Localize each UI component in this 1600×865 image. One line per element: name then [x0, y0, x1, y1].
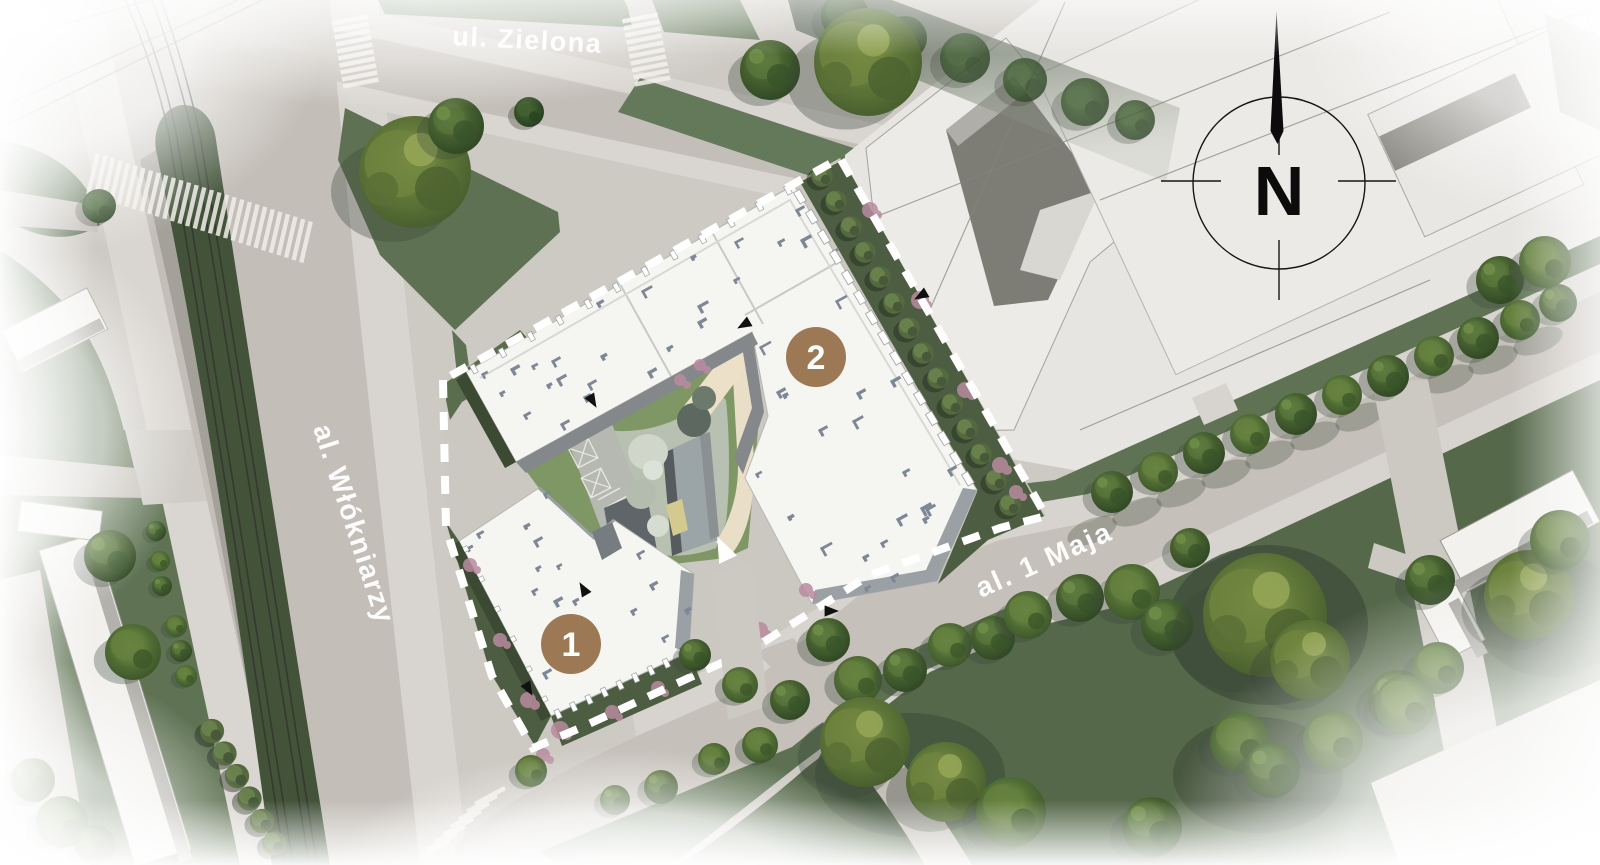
svg-text:1: 1 [562, 626, 581, 664]
svg-text:2: 2 [807, 339, 826, 377]
svg-text:N: N [1254, 152, 1305, 230]
